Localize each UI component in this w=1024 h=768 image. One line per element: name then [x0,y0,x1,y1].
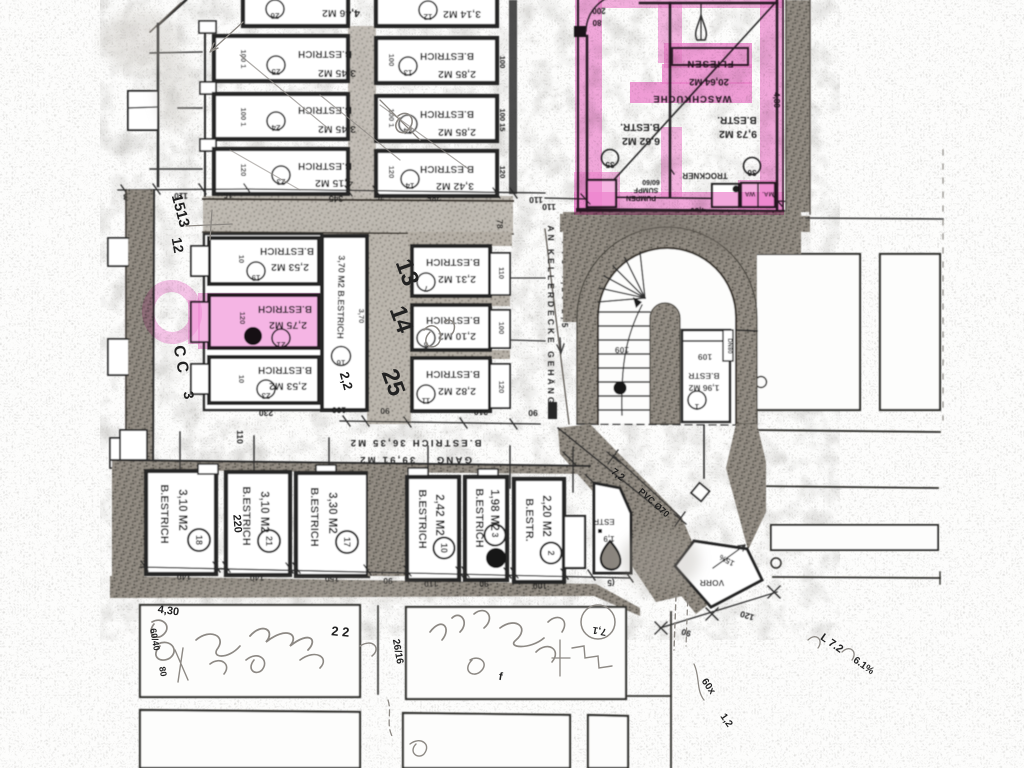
svg-text:60/60: 60/60 [642,178,660,185]
svg-text:3,42 M2: 3,42 M2 [436,180,474,192]
svg-text:120: 120 [239,164,248,177]
svg-text:6,62 M2: 6,62 M2 [622,135,660,147]
svg-text:B.ESTRICH: B.ESTRICH [298,160,352,171]
svg-text:B.ESTR.: B.ESTR. [523,498,535,541]
svg-text:B.ESTRICH: B.ESTRICH [426,368,480,379]
svg-text:109: 109 [615,345,629,355]
svg-text:140: 140 [177,572,191,582]
svg-text:2,20 M2: 2,20 M2 [540,495,552,537]
svg-text:36: 36 [747,168,756,177]
svg-text:100 1: 100 1 [239,108,248,127]
svg-text:B.ESTRICH: B.ESTRICH [298,48,352,59]
svg-text:B.ESTRICH: B.ESTRICH [258,364,312,375]
svg-text:2 2: 2 2 [331,623,350,640]
svg-text:90: 90 [528,408,538,418]
svg-text:1: 1 [694,402,699,411]
svg-text:10: 10 [237,375,246,383]
svg-text:B.ESTRICH: B.ESTRICH [260,245,314,256]
svg-text:100: 100 [387,54,396,67]
svg-text:2,31 M2: 2,31 M2 [438,273,476,285]
svg-text:12: 12 [423,12,432,21]
svg-text:19: 19 [251,273,260,282]
svg-text:17: 17 [342,537,352,547]
svg-text:10: 10 [237,255,246,263]
svg-text:285: 285 [427,193,441,203]
svg-text:25: 25 [271,67,280,76]
svg-text:230: 230 [259,408,273,418]
svg-text:B.ESTRICH: B.ESTRICH [420,163,474,174]
svg-text:23: 23 [261,391,270,400]
svg-text:B.ESTR: B.ESTR [688,371,719,381]
svg-text:3,70: 3,70 [357,309,366,324]
svg-text:7: 7 [423,284,428,293]
svg-text:13: 13 [403,68,412,77]
svg-text:10: 10 [439,543,449,553]
svg-text:3,10 M2: 3,10 M2 [258,491,270,533]
svg-text:109: 109 [698,352,712,362]
svg-text:120: 120 [387,166,396,179]
svg-text:2,85 M2: 2,85 M2 [438,126,476,138]
svg-text:75: 75 [375,192,384,201]
svg-text:3,30 M2: 3,30 M2 [326,492,338,534]
svg-text:2,53 M2: 2,53 M2 [271,261,309,273]
svg-text:B.ESTRICH: B.ESTRICH [426,256,480,267]
svg-text:90: 90 [479,579,489,589]
svg-text:15: 15 [223,190,232,199]
svg-text:2,10 M2: 2,10 M2 [438,330,476,342]
svg-text:4,46 M2: 4,46 M2 [322,7,360,19]
svg-text:100: 100 [497,322,506,335]
svg-text:(5: (5 [607,578,615,587]
svg-text:220: 220 [230,514,244,533]
svg-text:3,10 M2: 3,10 M2 [176,489,188,531]
svg-text:B.ESTRICH: B.ESTRICH [158,484,170,543]
svg-text:B.ESTRICH: B.ESTRICH [473,488,485,547]
svg-text:2,82 M2: 2,82 M2 [438,385,476,397]
svg-text:B.ESTRICH: B.ESTRICH [308,487,320,546]
svg-text:B.ESTRICH: B.ESTRICH [420,108,474,119]
svg-text:12: 12 [169,236,187,254]
svg-text:3: 3 [490,532,500,537]
svg-text:24: 24 [271,123,280,132]
svg-text:90: 90 [380,406,390,416]
svg-text:DN80: DN80 [726,338,732,354]
svg-text:3,14 M2: 3,14 M2 [443,8,481,20]
svg-text:35: 35 [605,160,614,169]
svg-text:3,45 M2: 3,45 M2 [318,67,356,79]
svg-text:B.ESTRICH 36,35 M2: B.ESTRICH 36,35 M2 [348,437,481,448]
svg-text:AN KELLERDECKE GEHÄNGT: AN KELLERDECKE GEHÄNGT [546,225,556,414]
svg-text:2,85 M2: 2,85 M2 [438,68,476,80]
svg-text:B.ESTRICH: B.ESTRICH [416,489,428,548]
svg-text:110: 110 [529,195,543,205]
svg-text:VORR: VORR [700,578,725,588]
svg-text:120: 120 [497,381,506,394]
svg-text:345: 345 [329,194,343,204]
svg-text:B.ESTRICH: B.ESTRICH [420,50,474,61]
svg-text:SUMPF: SUMPF [633,186,658,193]
svg-text:120: 120 [498,166,507,179]
svg-text:80: 80 [157,666,169,678]
svg-text:100 1: 100 1 [239,50,248,69]
svg-text:110: 110 [542,202,556,212]
svg-text:9,73 M2: 9,73 M2 [719,128,757,140]
svg-text:TROCKNER: TROCKNER [682,171,728,180]
svg-text:21: 21 [264,536,274,546]
svg-text:100: 100 [533,581,547,591]
svg-text:B.ESTR.: B.ESTR. [620,121,660,132]
svg-text:110: 110 [235,430,245,444]
svg-text:3,70 M2 B.ESTRICH: 3,70 M2 B.ESTRICH [335,255,346,339]
svg-text:78: 78 [495,219,505,229]
svg-text:100 15: 100 15 [498,109,507,132]
svg-text:16: 16 [336,358,345,367]
svg-text:4,15 M2: 4,15 M2 [315,177,353,189]
svg-text:26: 26 [270,11,279,20]
svg-text:100: 100 [332,405,346,415]
svg-text:100: 100 [498,56,507,69]
svg-text:18: 18 [194,535,204,545]
svg-text:210: 210 [474,407,488,417]
svg-text:11: 11 [421,396,430,405]
svg-text:B.ESTR.: B.ESTR. [717,114,757,125]
svg-text:14: 14 [405,181,414,190]
svg-text:110: 110 [497,267,506,279]
svg-text:2,42 M2: 2,42 M2 [433,494,445,536]
svg-text:2: 2 [546,550,556,555]
svg-text:ESTR: ESTR [593,517,615,526]
